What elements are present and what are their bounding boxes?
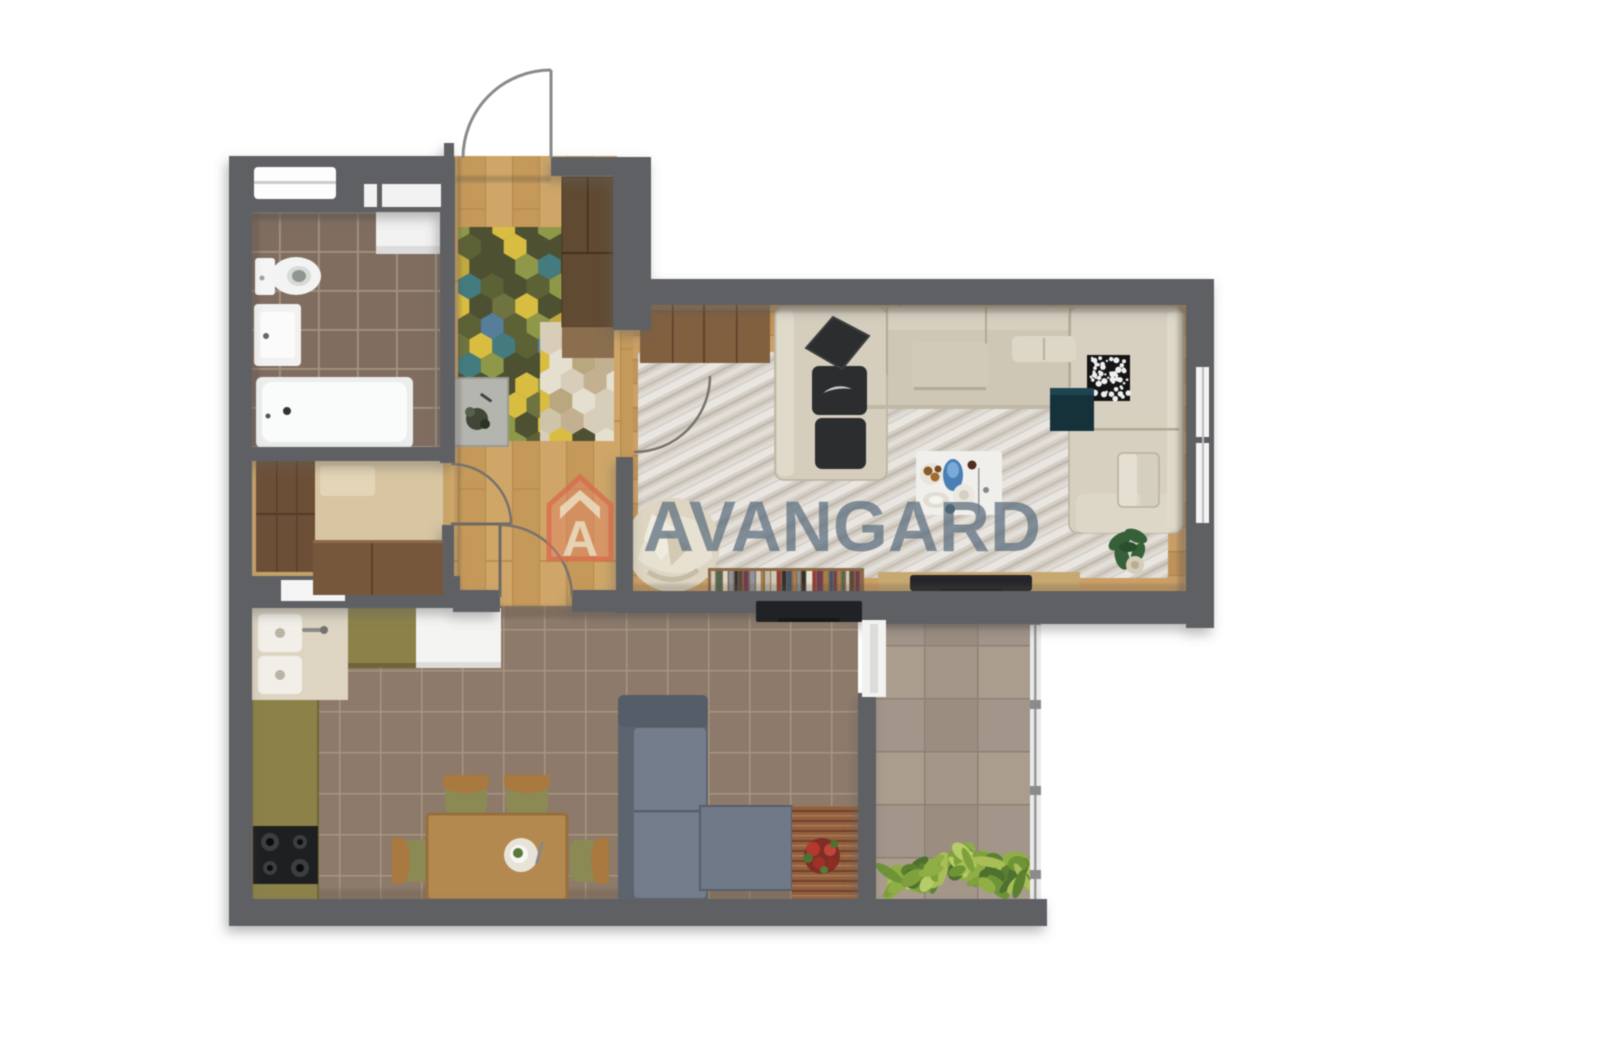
svg-text:A: A (562, 511, 598, 567)
svg-text:AVANGARD: AVANGARD (643, 488, 1041, 567)
